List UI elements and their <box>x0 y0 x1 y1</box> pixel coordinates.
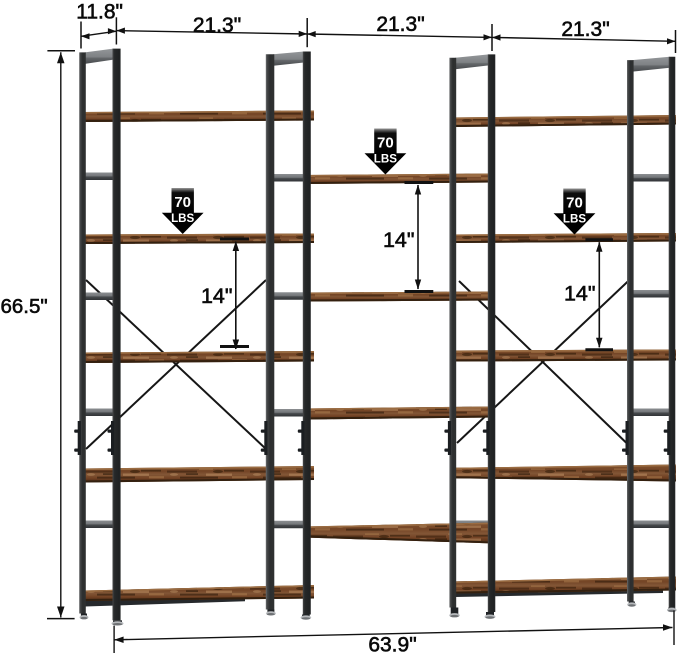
svg-text:70: 70 <box>566 195 583 212</box>
svg-text:LBS: LBS <box>171 212 194 225</box>
svg-text:21.3": 21.3" <box>376 13 424 36</box>
svg-text:66.5": 66.5" <box>1 295 48 318</box>
svg-text:14": 14" <box>564 281 596 305</box>
svg-text:70: 70 <box>377 135 394 152</box>
svg-text:LBS: LBS <box>374 153 397 166</box>
svg-text:21.3": 21.3" <box>561 18 609 41</box>
svg-text:21.3": 21.3" <box>193 14 241 37</box>
svg-text:11.8": 11.8" <box>76 1 123 24</box>
svg-text:70: 70 <box>174 194 191 211</box>
svg-text:14": 14" <box>201 284 233 308</box>
svg-text:14": 14" <box>383 228 415 252</box>
svg-text:LBS: LBS <box>563 213 586 226</box>
svg-text:63.9": 63.9" <box>368 634 416 655</box>
